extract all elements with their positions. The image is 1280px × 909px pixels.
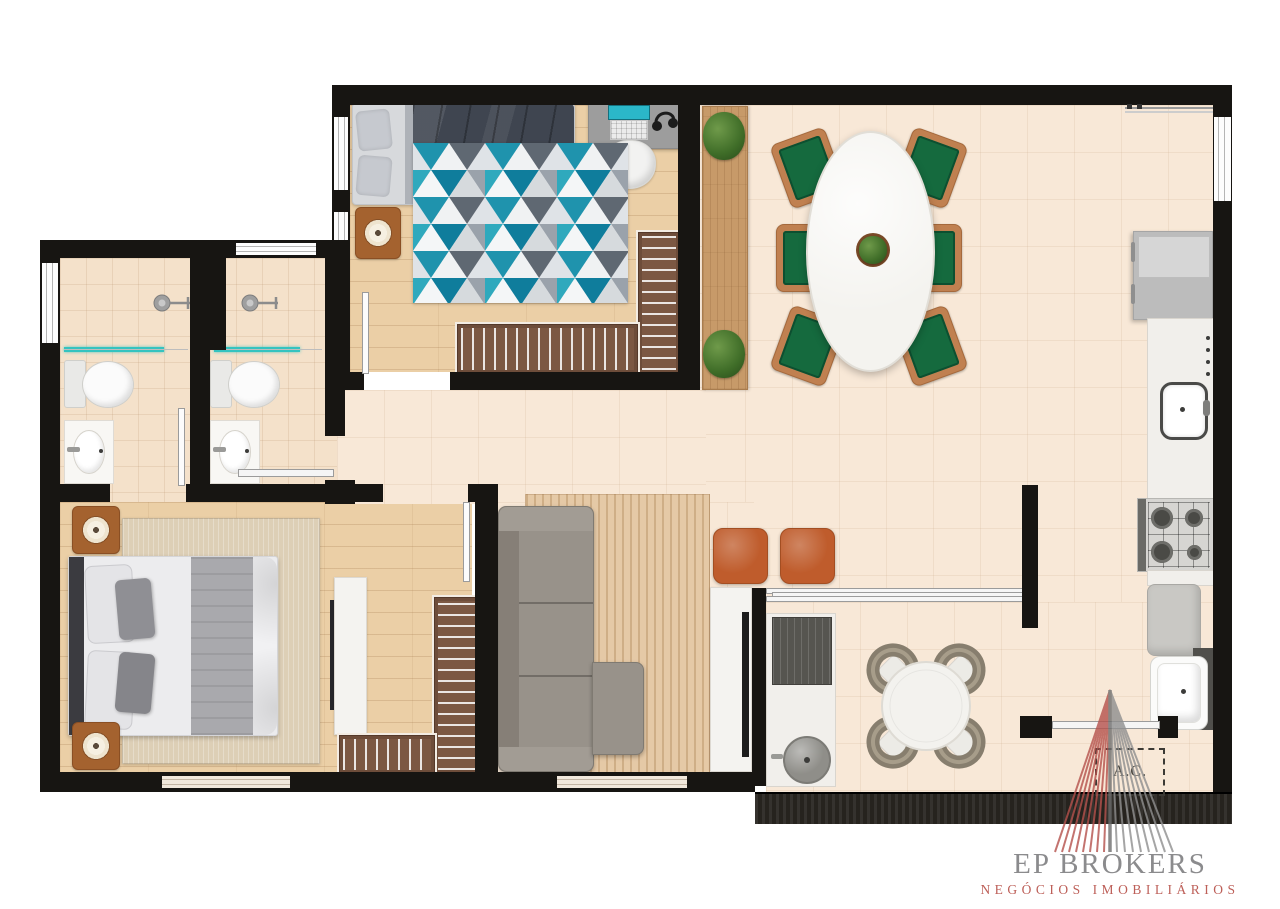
shower-glass-rail bbox=[64, 349, 188, 350]
floor-plan: A.C. EP BROKERS NEGÓCIOS IMOBILIÁRIOS bbox=[0, 0, 1280, 909]
stove-knob bbox=[1206, 372, 1210, 376]
nightstand bbox=[72, 506, 120, 554]
nightstand bbox=[72, 722, 120, 770]
blanket bbox=[191, 557, 253, 735]
bathroom2-sliding-door bbox=[238, 469, 334, 477]
window bbox=[557, 776, 687, 788]
master-tv-panel bbox=[334, 577, 367, 735]
sofa-chaise bbox=[592, 662, 644, 755]
wall-top bbox=[332, 85, 1232, 105]
window bbox=[162, 776, 290, 788]
grill-icon bbox=[772, 617, 832, 685]
bedroom2-door-leaf bbox=[362, 292, 369, 374]
cooktop bbox=[1137, 498, 1215, 572]
wall-bath2-right bbox=[325, 240, 345, 436]
cushion bbox=[114, 578, 155, 641]
wall-bedroom2-bottom bbox=[450, 372, 700, 390]
drain bbox=[99, 449, 103, 453]
table-lamp-icon bbox=[81, 731, 111, 761]
toilet-bowl bbox=[228, 361, 280, 408]
burner-icon bbox=[1151, 541, 1173, 563]
fridge-top bbox=[1138, 236, 1210, 278]
bathroom1-door-leaf bbox=[178, 408, 185, 486]
burner-icon bbox=[1187, 545, 1202, 560]
door-hinge bbox=[1137, 104, 1142, 109]
centerpiece bbox=[856, 233, 890, 267]
faucet-icon bbox=[771, 754, 783, 759]
wall-master-top-a bbox=[40, 484, 110, 502]
master-door-leaf bbox=[463, 502, 470, 582]
hallway-floor bbox=[337, 390, 706, 504]
wall-bath-divider bbox=[190, 258, 210, 484]
drain bbox=[804, 757, 810, 763]
burner-icon bbox=[1151, 507, 1173, 529]
balcony-table bbox=[882, 662, 970, 750]
faucet-icon bbox=[1203, 400, 1210, 416]
fridge-handle bbox=[1131, 242, 1135, 262]
door-hinge bbox=[1127, 104, 1132, 109]
burner-icon bbox=[1185, 509, 1203, 527]
logo-tagline: NEGÓCIOS IMOBILIÁRIOS bbox=[950, 882, 1270, 898]
window bbox=[334, 117, 348, 190]
plant-icon bbox=[703, 112, 745, 160]
stove-knob bbox=[1206, 360, 1210, 364]
faucet-icon bbox=[213, 447, 226, 452]
wall-master-top-b bbox=[186, 484, 383, 502]
wardrobe-hangers bbox=[343, 739, 431, 770]
shower-glass-rail bbox=[214, 349, 322, 350]
wall-post bbox=[1022, 485, 1038, 628]
headphones-icon bbox=[650, 103, 680, 135]
sofa-backrest bbox=[499, 507, 519, 771]
bedroom2-wardrobe-side bbox=[636, 230, 682, 376]
sofa-armrest bbox=[499, 747, 593, 771]
wardrobe-hangers bbox=[438, 601, 476, 770]
wall-master-top-c bbox=[468, 484, 498, 502]
table-lamp-icon bbox=[363, 218, 393, 248]
laptop-screen bbox=[608, 105, 650, 120]
kitchen-sink bbox=[1160, 382, 1208, 440]
cushion bbox=[114, 652, 155, 715]
pillow bbox=[355, 155, 392, 198]
sofa-armrest bbox=[499, 507, 593, 531]
entry-door bbox=[1125, 111, 1213, 113]
grill-counter bbox=[766, 613, 836, 787]
shower-head-icon bbox=[152, 293, 194, 313]
wardrobe-hangers bbox=[642, 236, 676, 370]
window bbox=[1214, 117, 1231, 201]
laptop bbox=[608, 105, 648, 138]
ottoman bbox=[713, 528, 768, 584]
wall-balcony-divider bbox=[752, 588, 766, 786]
refrigerator bbox=[1133, 231, 1213, 320]
sofa bbox=[498, 506, 594, 772]
double-bed bbox=[68, 556, 278, 736]
pillow bbox=[355, 108, 393, 151]
bedroom2-wardrobe-bottom bbox=[455, 322, 640, 376]
tv-icon bbox=[742, 612, 749, 757]
round-sink bbox=[783, 736, 831, 784]
laptop-keyboard bbox=[610, 120, 648, 140]
fridge-handle bbox=[1131, 284, 1135, 304]
faucet-icon bbox=[67, 447, 80, 452]
plant-icon bbox=[859, 236, 887, 264]
wardrobe-hangers bbox=[461, 328, 634, 370]
sheet-edge bbox=[253, 557, 277, 735]
wall-bedroom2-right bbox=[678, 85, 700, 390]
sofa-seam bbox=[519, 602, 593, 604]
window bbox=[236, 243, 316, 255]
table-lamp-icon bbox=[81, 515, 111, 545]
bathroom-vanity bbox=[64, 420, 114, 484]
toilet-bowl bbox=[82, 361, 134, 408]
washing-machine bbox=[1147, 584, 1201, 656]
ep-brokers-logo-icon bbox=[980, 666, 1240, 854]
balcony-sliding-door bbox=[766, 596, 1024, 602]
wall-living-left bbox=[475, 502, 498, 772]
sofa-seam bbox=[519, 675, 593, 677]
drain bbox=[245, 449, 249, 453]
shower-head-icon bbox=[240, 293, 282, 313]
plant-icon bbox=[703, 330, 745, 378]
sheet-fold bbox=[405, 104, 413, 204]
window bbox=[42, 263, 58, 343]
master-wardrobe-bottom bbox=[337, 733, 437, 776]
cooktop-edge bbox=[1138, 499, 1146, 571]
logo-title: EP BROKERS bbox=[980, 848, 1240, 881]
ottoman bbox=[780, 528, 835, 584]
geometric-rug bbox=[413, 143, 628, 303]
wall-shower-stub bbox=[210, 258, 226, 350]
nightstand bbox=[355, 207, 401, 259]
headboard bbox=[69, 557, 84, 735]
stove-knob bbox=[1206, 348, 1210, 352]
drain bbox=[1180, 407, 1185, 412]
stove-knob bbox=[1206, 336, 1210, 340]
